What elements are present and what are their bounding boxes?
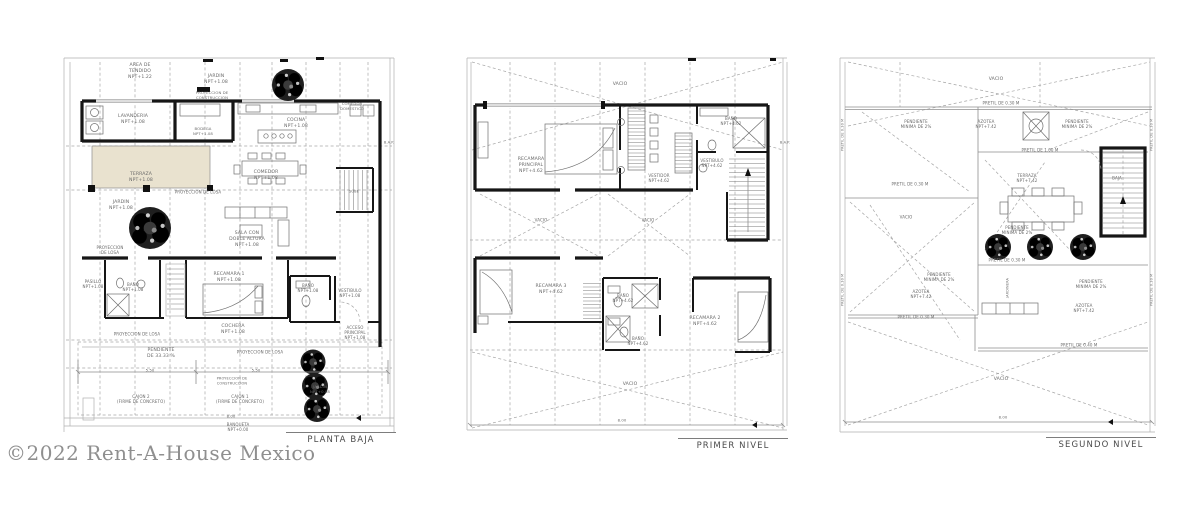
blueprint-canvas: AREA DE TENDIDO NPT+1.22JARDIN NPT+1.08P… — [0, 0, 1200, 507]
stairs-icon — [729, 159, 765, 236]
bed-icon — [203, 284, 263, 315]
bed-icon — [478, 270, 512, 324]
watermark: ©2022 Rent-A-House Mexico — [6, 441, 316, 465]
washer-dryer-icon — [86, 104, 220, 134]
sofa-icon — [225, 207, 289, 246]
dining-table-icon — [234, 153, 306, 184]
dimension-line — [843, 419, 1154, 425]
tree-icon — [1027, 234, 1053, 260]
bed-icon — [738, 292, 768, 342]
tinaco-icon — [1023, 112, 1049, 140]
dimension-line — [76, 360, 390, 421]
segundo-nivel-plan — [840, 58, 1155, 432]
planter-icon — [982, 303, 1038, 314]
stairs-icon — [167, 269, 184, 309]
planta-baja-plan — [64, 57, 394, 432]
tree-icon — [302, 373, 328, 399]
tree-icon — [129, 207, 171, 249]
floorplan-linework — [0, 0, 1200, 507]
tree-icon — [985, 234, 1011, 260]
tree-icon — [301, 350, 326, 375]
closet-icon — [628, 108, 692, 173]
bed-icon — [478, 119, 625, 175]
void-cross — [472, 62, 783, 428]
plan-title-segundo-nivel: SEGUNDO NIVEL — [1046, 437, 1156, 450]
primer-nivel-plan — [467, 58, 787, 430]
plan-title-primer-nivel: PRIMER NIVEL — [678, 438, 788, 451]
tree-icon — [1070, 234, 1096, 260]
stairs-icon — [583, 284, 601, 319]
tree-icon — [272, 69, 304, 101]
stairs-icon — [1081, 148, 1145, 236]
tree-icon — [304, 396, 330, 422]
window — [483, 101, 605, 109]
terrace-table-icon — [1000, 188, 1082, 230]
dimension-line — [468, 422, 785, 428]
terrace-area — [92, 146, 210, 188]
